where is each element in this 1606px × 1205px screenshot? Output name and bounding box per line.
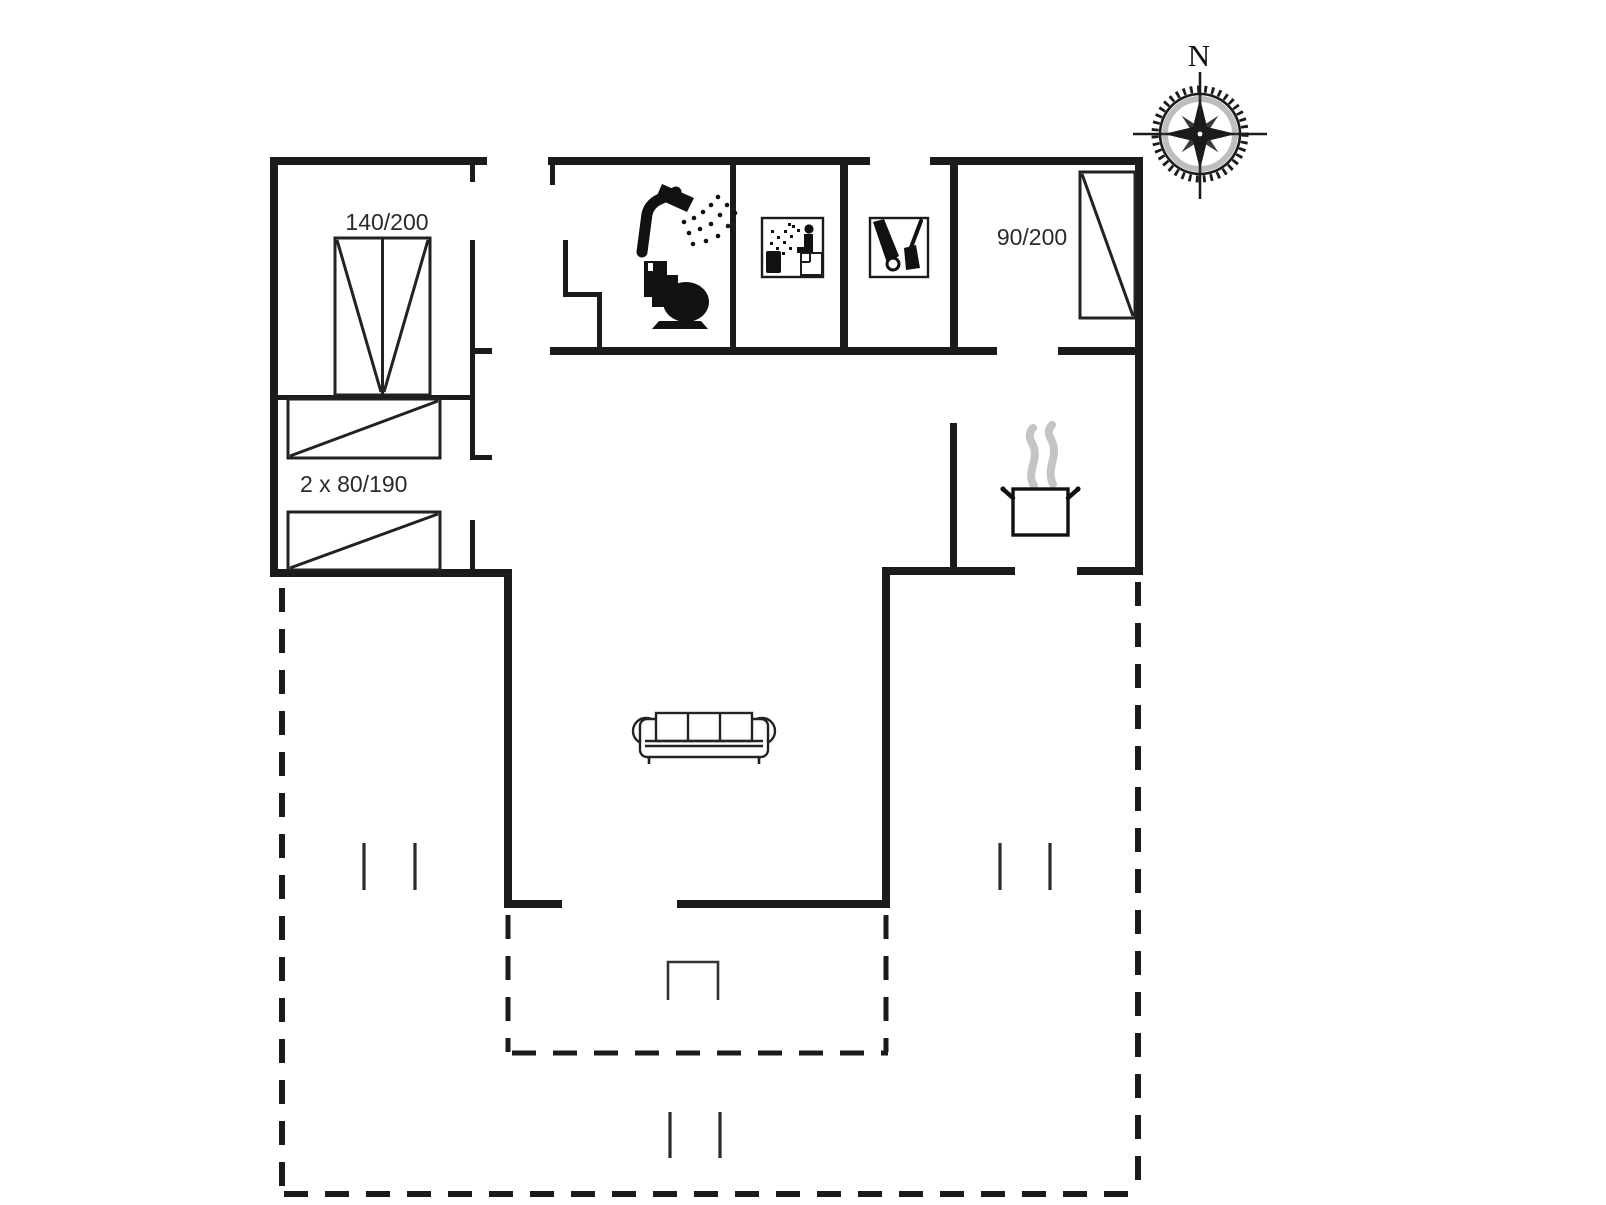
shower-icon [642, 184, 737, 252]
terrace-entry-marks [364, 843, 1050, 1158]
vacuum-cleaner-icon [870, 218, 928, 277]
sofa-icon [633, 713, 775, 764]
floorplan-canvas: 140/200 2 x 80/190 [0, 0, 1606, 1205]
single-bed-lower [288, 512, 440, 570]
bedroom-2: 2 x 80/190 [288, 399, 440, 570]
bathroom [642, 184, 737, 329]
terrace-boundaries [282, 582, 1140, 1196]
grill-step-icon [668, 962, 718, 1000]
terrace-markers [364, 843, 1050, 1158]
bedroom-1: 140/200 [335, 209, 430, 395]
single-bed-upper [288, 399, 440, 458]
single-bed-size-label: 90/200 [997, 224, 1067, 250]
twin-beds-size-label: 2 x 80/190 [300, 471, 407, 497]
cooking-pot-icon [1000, 486, 1080, 535]
double-bed-size-label: 140/200 [345, 209, 428, 235]
steam-icon [1030, 425, 1054, 486]
compass-rose-icon: N [1133, 38, 1267, 199]
kitchen [1000, 425, 1080, 535]
floorplan-svg: 140/200 2 x 80/190 [0, 0, 1606, 1205]
toilet-icon [644, 261, 709, 329]
single-bed [1080, 172, 1135, 318]
bedroom-3: 90/200 [997, 172, 1135, 318]
compass-north-label: N [1188, 38, 1210, 73]
sauna-icon [762, 218, 823, 277]
double-bed [335, 238, 430, 395]
